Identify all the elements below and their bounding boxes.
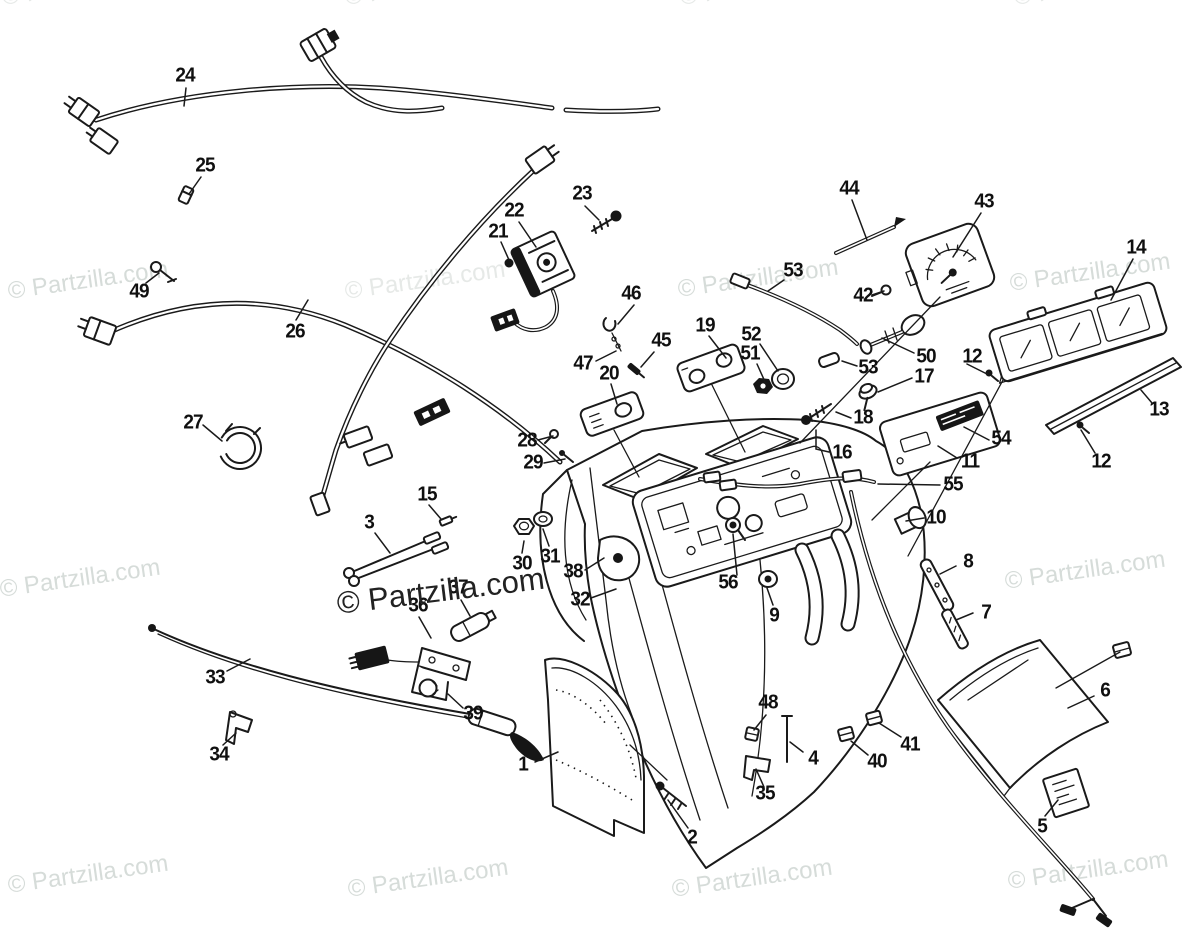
cable-fork-terminals [1059, 899, 1113, 928]
connector-plug-icon [413, 398, 451, 427]
clip-icon [178, 186, 194, 205]
bracket-strip [941, 608, 970, 650]
clip-icon [745, 727, 759, 741]
connector-plug-icon [490, 308, 520, 332]
terminal-icon [439, 514, 457, 526]
ignition-switch-icon [859, 311, 928, 355]
connector-plug-icon [76, 314, 117, 345]
bracket-strip [919, 558, 955, 613]
wire-leads [344, 514, 457, 586]
clamp-ring-icon [211, 419, 268, 476]
grommet-icon [420, 680, 439, 697]
choke-cable [148, 624, 544, 761]
parts-diagram: © Partzilla.com© Partzilla.com© Partzill… [0, 0, 1200, 948]
bolt-icon [592, 211, 622, 234]
diagram-artwork [0, 0, 1200, 948]
console-pad [934, 640, 1108, 796]
connector-plug-icon [84, 124, 119, 155]
bulb-socket-icon [449, 607, 498, 643]
rivet-icon [151, 262, 176, 282]
clip-icon [1113, 642, 1132, 659]
switch-assembly [348, 607, 497, 700]
connector-plug-icon [363, 444, 392, 466]
nut-icon [514, 519, 534, 534]
nut-icon [753, 378, 773, 394]
hose-fitting-icon [730, 273, 750, 289]
gauge-icon [897, 221, 997, 311]
bushing-icon [855, 381, 883, 410]
ring-icon [772, 369, 794, 389]
tray-parts [579, 318, 746, 437]
grommet-icon [759, 571, 777, 587]
wiring-harness [62, 24, 658, 515]
tray-icon [676, 343, 746, 393]
instrument-frame [982, 274, 1168, 384]
spacer-icon [818, 352, 840, 368]
bolt-icon [1077, 422, 1090, 434]
connector-plug-icon [310, 492, 330, 516]
resistor-box-icon [510, 230, 575, 297]
connector-plug-icon [62, 93, 100, 127]
clip-icon [838, 726, 855, 741]
trim-strip [1046, 358, 1181, 434]
bolt-icon [986, 370, 999, 382]
tray-icon [579, 391, 645, 438]
switch-panel [878, 391, 1001, 477]
washer-icon [534, 512, 552, 526]
connector-plug-icon [300, 24, 343, 62]
connector-plug-icon [525, 141, 562, 174]
